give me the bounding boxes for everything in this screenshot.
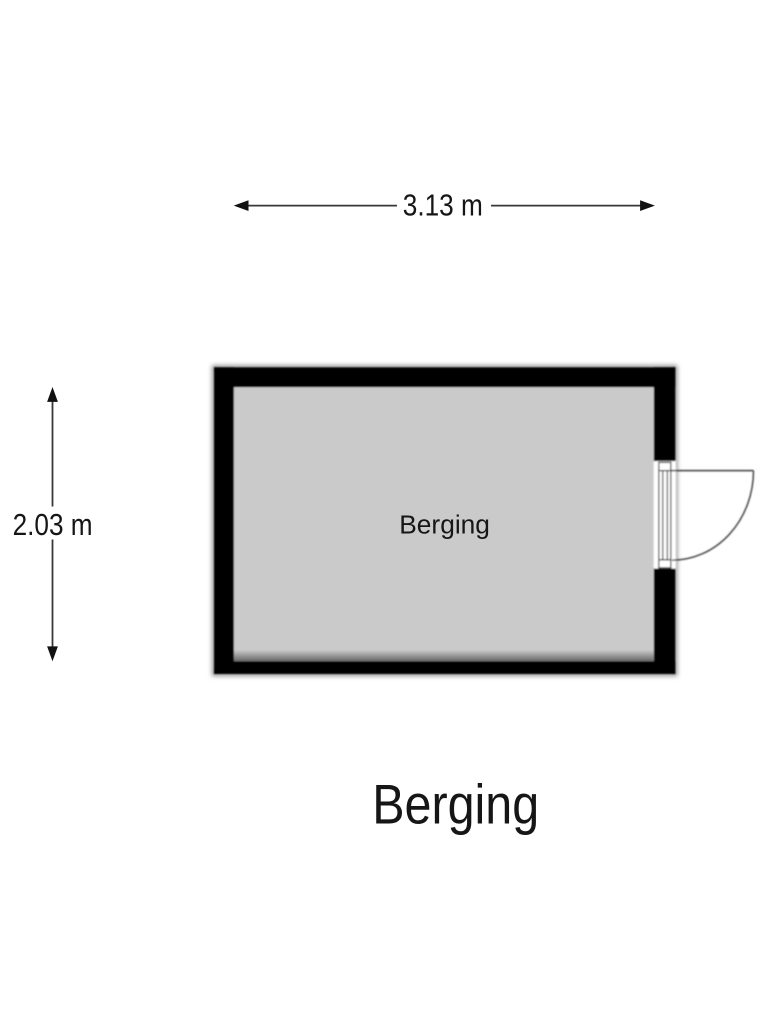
svg-text:Berging: Berging: [372, 774, 539, 836]
svg-text:2.03 m: 2.03 m: [13, 508, 93, 542]
svg-text:Berging: Berging: [399, 509, 490, 539]
svg-text:3.13 m: 3.13 m: [403, 188, 483, 222]
